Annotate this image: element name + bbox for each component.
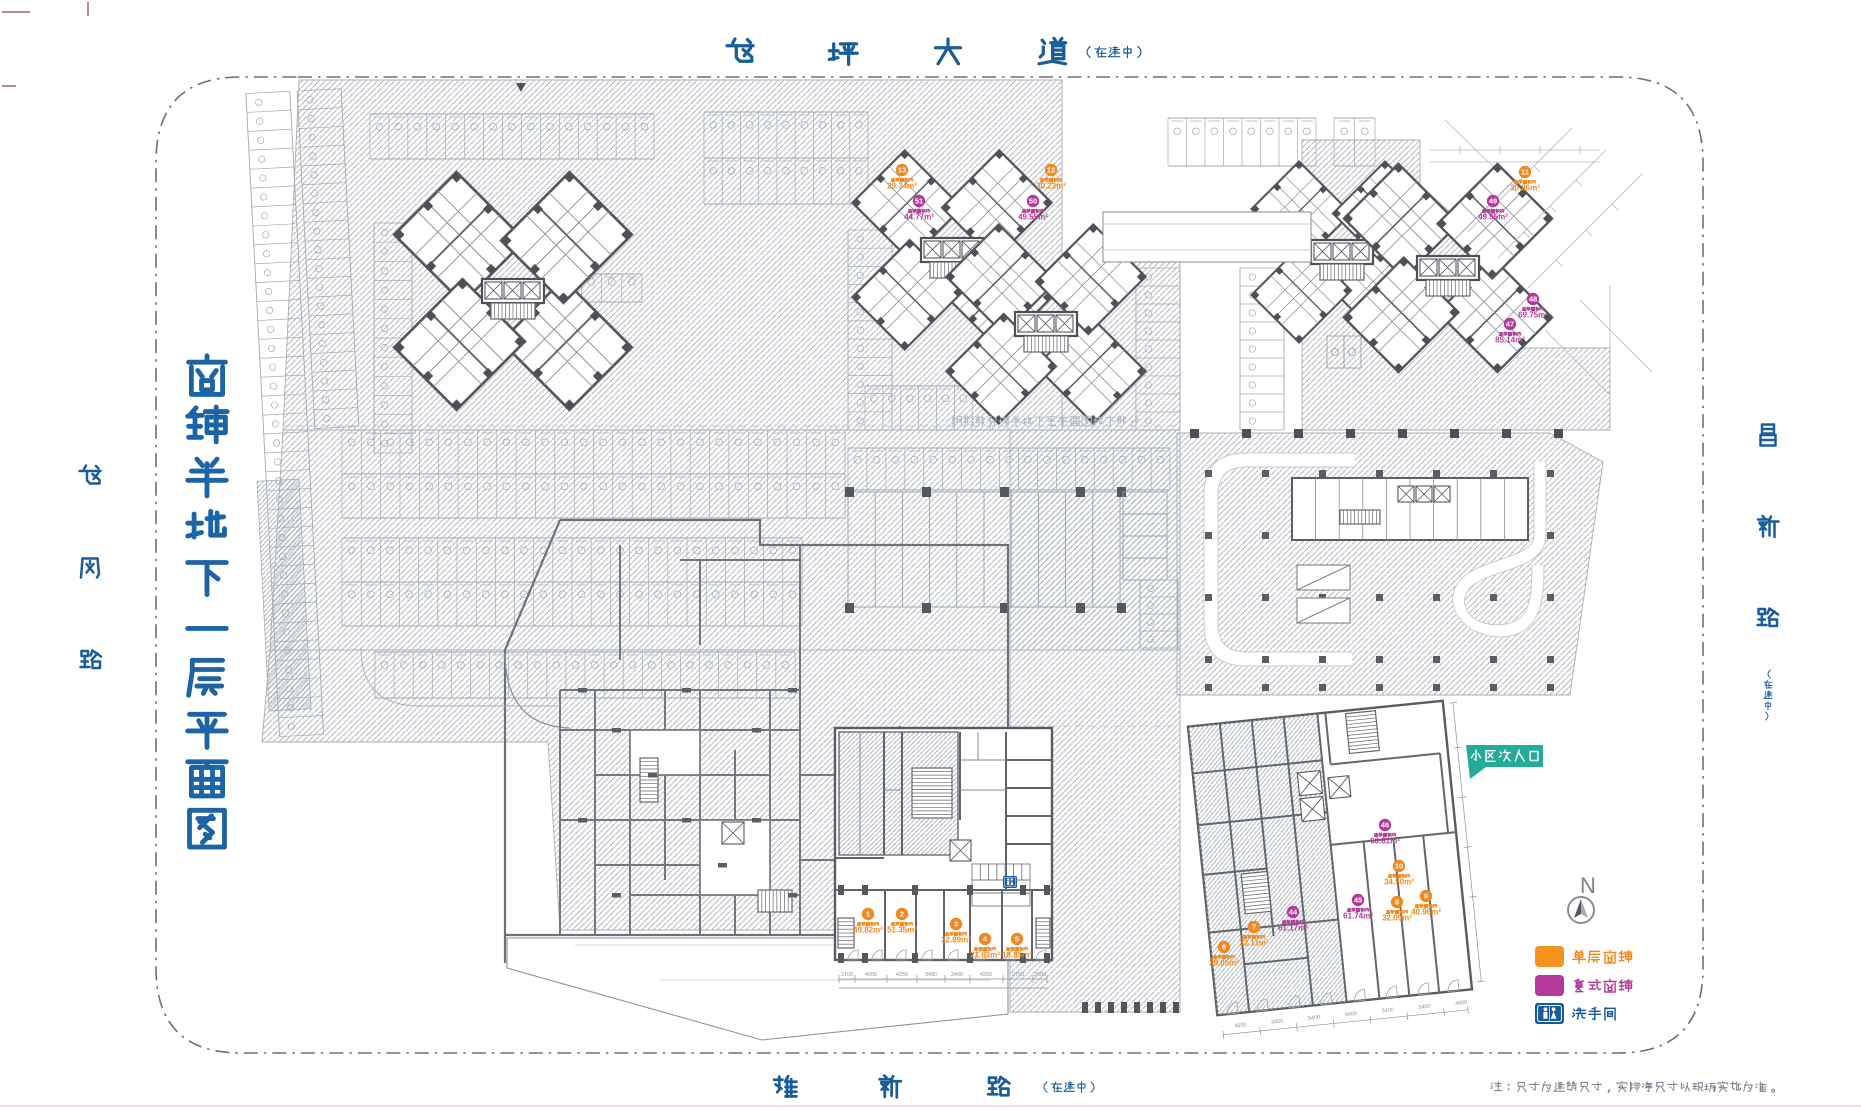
svg-text:49.55m²: 49.55m² — [1018, 213, 1048, 222]
svg-text:4600: 4600 — [1455, 1000, 1468, 1007]
svg-text:13: 13 — [898, 166, 906, 175]
svg-text:4000: 4000 — [865, 972, 877, 978]
svg-text:3490: 3490 — [925, 972, 937, 978]
svg-text:9: 9 — [1424, 892, 1428, 901]
svg-text:49.82m²: 49.82m² — [853, 926, 883, 935]
svg-text:50: 50 — [1029, 197, 1037, 206]
svg-text:3: 3 — [954, 920, 958, 929]
svg-text:22.11m²: 22.11m² — [1239, 939, 1269, 948]
svg-text:51.35m²: 51.35m² — [887, 926, 917, 935]
svg-text:2: 2 — [900, 910, 904, 919]
svg-text:47: 47 — [1506, 320, 1514, 329]
svg-text:51: 51 — [915, 197, 923, 206]
svg-text:11: 11 — [1521, 168, 1529, 177]
svg-text:4250: 4250 — [896, 972, 908, 978]
svg-text:48: 48 — [1529, 295, 1537, 304]
svg-text:29.05m²: 29.05m² — [1209, 959, 1239, 968]
svg-text:30.86m²: 30.86m² — [1510, 184, 1540, 193]
svg-text:45: 45 — [1354, 896, 1362, 905]
svg-text:7: 7 — [1252, 923, 1256, 932]
svg-text:44: 44 — [1289, 908, 1298, 917]
svg-text:1: 1 — [866, 910, 870, 919]
svg-text:66.81m²: 66.81m² — [1370, 837, 1400, 846]
svg-text:46: 46 — [1381, 821, 1389, 830]
svg-text:61.17m²: 61.17m² — [1278, 924, 1308, 933]
svg-text:12: 12 — [1047, 166, 1055, 175]
svg-text:2500: 2500 — [1034, 972, 1046, 978]
svg-text:40.96m²: 40.96m² — [1411, 908, 1441, 917]
svg-text:2100: 2100 — [841, 972, 853, 978]
svg-text:N: N — [1580, 873, 1596, 898]
svg-text:30.23m²: 30.23m² — [1036, 182, 1066, 191]
svg-text:85.14m²: 85.14m² — [1495, 336, 1525, 345]
svg-text:69.75m²: 69.75m² — [1518, 311, 1548, 320]
svg-text:3750: 3750 — [1012, 972, 1024, 978]
svg-text:29.34m²: 29.34m² — [887, 182, 917, 191]
svg-text:44.77m²: 44.77m² — [904, 213, 934, 222]
svg-text:10: 10 — [1395, 862, 1403, 871]
svg-text:8: 8 — [1395, 898, 1399, 907]
svg-text:5400: 5400 — [1308, 1015, 1321, 1022]
svg-text:3400: 3400 — [951, 972, 963, 978]
svg-text:49: 49 — [1489, 197, 1497, 206]
svg-text:32.09m²: 32.09m² — [1382, 914, 1412, 923]
svg-text:6: 6 — [1222, 943, 1226, 952]
svg-text:5: 5 — [1015, 935, 1019, 944]
svg-text:4250: 4250 — [980, 972, 992, 978]
svg-text:34.50m²: 34.50m² — [1384, 878, 1414, 887]
svg-text:3400: 3400 — [1381, 1007, 1394, 1014]
svg-text:5400: 5400 — [1418, 1004, 1431, 1011]
svg-text:49.55m²: 49.55m² — [1478, 213, 1508, 222]
svg-text:5400: 5400 — [1345, 1011, 1358, 1018]
svg-text:32.89m²: 32.89m² — [941, 936, 971, 945]
svg-text:4600: 4600 — [1234, 1022, 1247, 1029]
svg-text:61.74m²: 61.74m² — [1343, 912, 1373, 921]
svg-text:21.63m²: 21.63m² — [970, 951, 1000, 960]
svg-text:3400: 3400 — [1271, 1019, 1284, 1026]
svg-text:19.85m²: 19.85m² — [1002, 951, 1032, 960]
